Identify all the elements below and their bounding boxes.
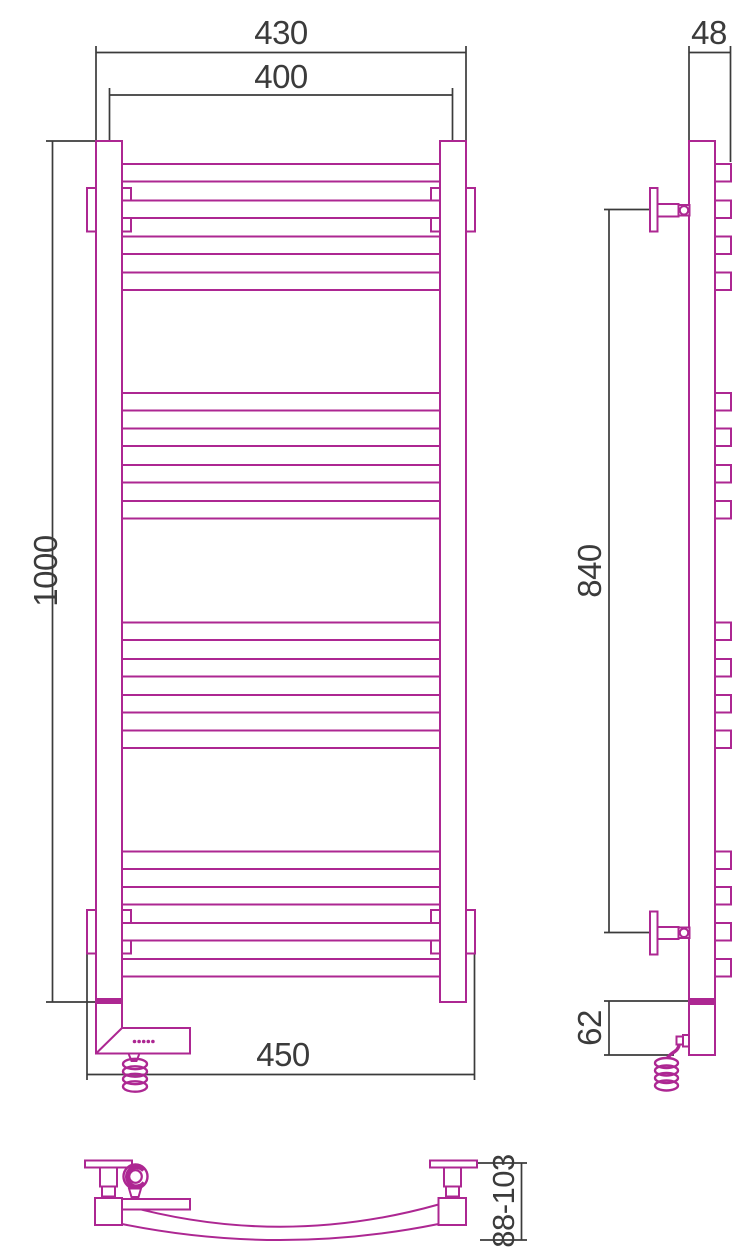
rung [122, 393, 440, 411]
rung-stub [715, 273, 731, 291]
rung [122, 923, 440, 941]
rung-stub [715, 923, 731, 941]
bracket-tab [431, 188, 440, 201]
rung [122, 465, 440, 483]
rung [122, 237, 440, 255]
rung-stub [715, 852, 731, 870]
rung-stub [715, 959, 731, 977]
rung [122, 887, 440, 905]
heater-housing-side [689, 1004, 715, 1055]
dim-430-label: 430 [254, 14, 308, 51]
bracket-tab [122, 941, 131, 954]
rung [122, 273, 440, 291]
drawing-svg: 430 400 48 450 1000 840 62 88-103 [0, 0, 750, 1260]
technical-drawing: 430 400 48 450 1000 840 62 88-103 [0, 0, 750, 1260]
bracket-wall-plate [650, 188, 658, 232]
bracket-tab [122, 218, 131, 232]
bracket-foot [102, 1187, 115, 1197]
rung [122, 201, 440, 219]
dim-450-label: 450 [256, 1036, 310, 1073]
dim-62-label: 62 [571, 1010, 608, 1046]
heater-flange [96, 999, 122, 1004]
rung [122, 429, 440, 447]
bracket-tab [431, 218, 440, 232]
front-right-post [440, 141, 466, 1002]
bracket-arm [658, 204, 679, 217]
rung-stub [715, 623, 731, 641]
dim-400-label: 400 [254, 58, 308, 95]
rung-stub [715, 164, 731, 182]
bracket-stem [444, 1168, 461, 1187]
bracket-tab [431, 910, 440, 923]
bracket-plate [87, 910, 96, 954]
dim-88103-label: 88-103 [486, 1154, 521, 1248]
rung [122, 852, 440, 870]
rung-stub [715, 429, 731, 447]
post-section [439, 1198, 467, 1225]
bracket-plate [466, 188, 475, 232]
bracket-wall-plate [650, 912, 658, 955]
rung-stub [715, 201, 731, 219]
bracket-foot [446, 1187, 459, 1197]
bracket-screw [680, 206, 688, 214]
rung [122, 501, 440, 519]
bracket-tab [431, 941, 440, 954]
rung [122, 731, 440, 749]
rung-stub [715, 465, 731, 483]
rung-stub [715, 731, 731, 749]
front-left-post [96, 141, 122, 1002]
rung [122, 695, 440, 713]
rung [122, 959, 440, 977]
rung [122, 164, 440, 182]
dim-840-label: 840 [571, 544, 608, 598]
bracket-stem [100, 1168, 117, 1187]
bracket-screw [680, 929, 688, 937]
bracket-tab [122, 910, 131, 923]
dim-48-label: 48 [691, 14, 727, 51]
bracket-plate [466, 910, 475, 954]
rung-stub [715, 393, 731, 411]
rung [122, 659, 440, 677]
rung [122, 623, 440, 641]
bracket-wall-plate [85, 1161, 132, 1168]
rung-stub [715, 695, 731, 713]
bracket-arm [658, 927, 679, 939]
bracket-plate [87, 188, 96, 232]
cord-fitting [683, 1035, 689, 1047]
dim-1000-label: 1000 [27, 535, 64, 607]
post-section [95, 1198, 122, 1225]
rung-stub [715, 887, 731, 905]
bracket-wall-plate [430, 1161, 477, 1168]
gland-base [129, 1189, 141, 1198]
rung-stub [715, 237, 731, 255]
heater-housing-bottom [122, 1199, 190, 1210]
rung-stub [715, 659, 731, 677]
side-post [689, 141, 715, 1002]
bracket-tab [122, 188, 131, 201]
rung-stub [715, 501, 731, 519]
